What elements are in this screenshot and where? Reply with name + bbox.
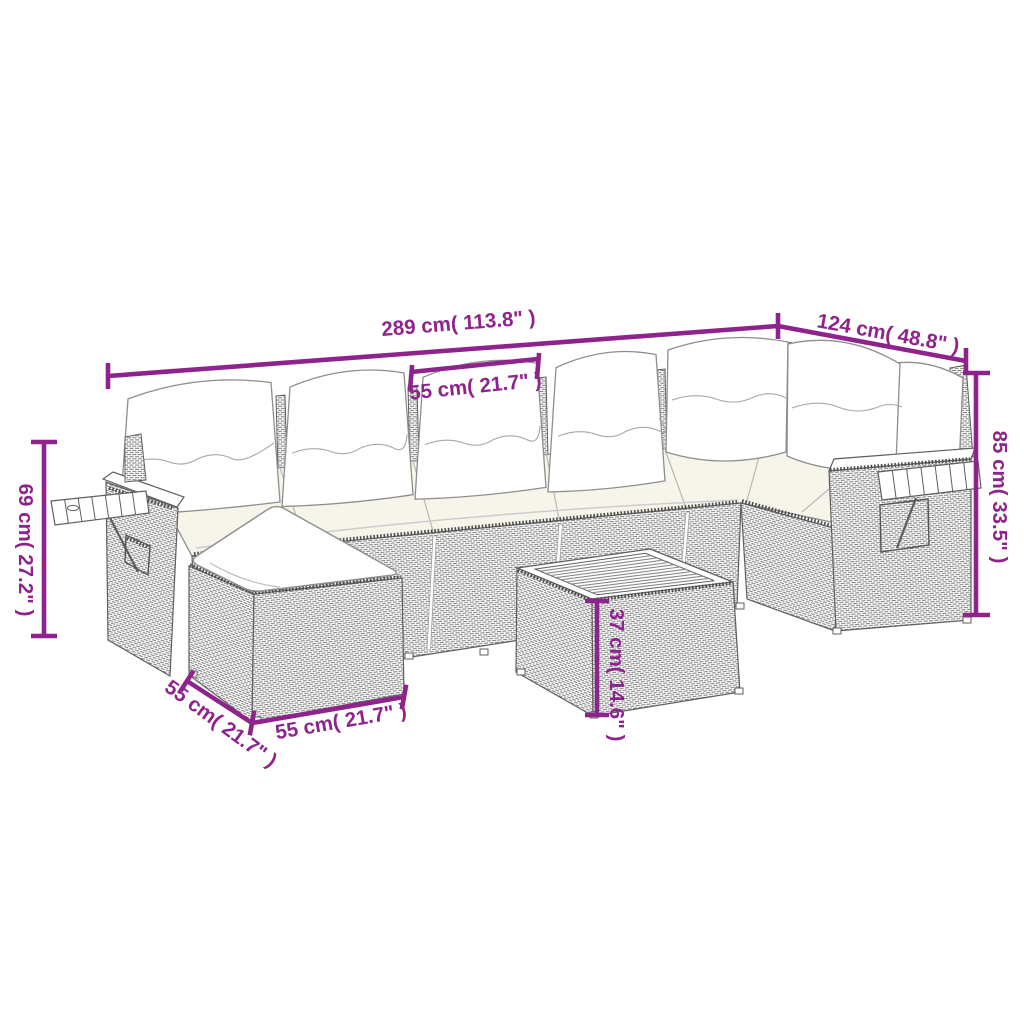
svg-text:85 cm( 33.5" ): 85 cm( 33.5" ) [988, 431, 1011, 564]
svg-text:69 cm( 27.2" ): 69 cm( 27.2" ) [14, 484, 37, 617]
svg-text:37 cm( 14.6" ): 37 cm( 14.6" ) [605, 609, 628, 742]
